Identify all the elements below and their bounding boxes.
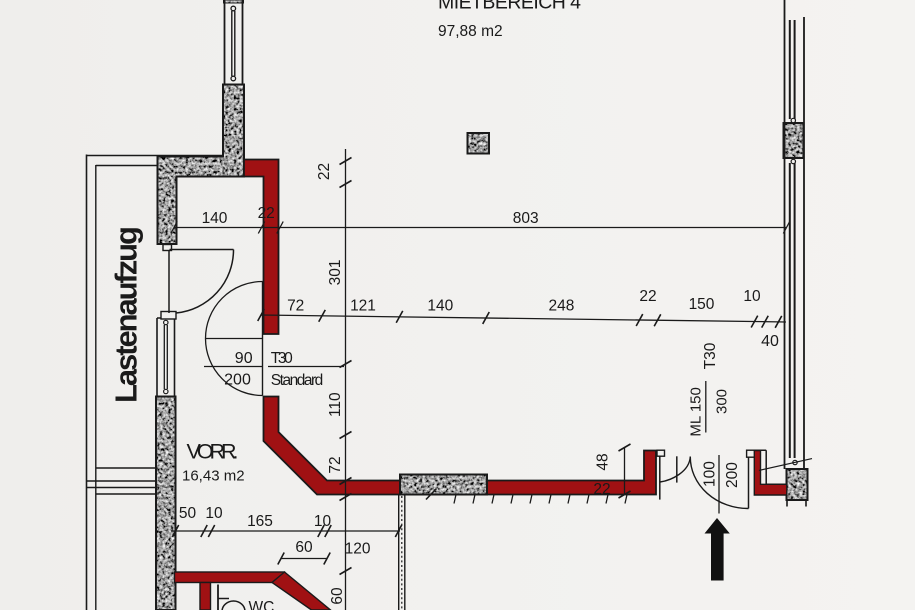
svg-text:110: 110 bbox=[327, 392, 344, 417]
svg-text:120: 120 bbox=[345, 541, 371, 558]
svg-text:248: 248 bbox=[548, 298, 574, 315]
svg-text:140: 140 bbox=[202, 210, 228, 227]
svg-text:60: 60 bbox=[295, 539, 313, 556]
svg-text:165: 165 bbox=[247, 513, 273, 530]
svg-text:T30: T30 bbox=[702, 342, 719, 369]
svg-text:60: 60 bbox=[329, 587, 346, 605]
svg-text:T30: T30 bbox=[271, 350, 293, 367]
svg-text:301: 301 bbox=[327, 259, 344, 285]
svg-text:72: 72 bbox=[287, 298, 304, 315]
svg-text:150: 150 bbox=[689, 296, 715, 313]
svg-text:97,88 m2: 97,88 m2 bbox=[438, 23, 503, 40]
svg-text:22: 22 bbox=[639, 288, 656, 305]
svg-text:140: 140 bbox=[427, 298, 453, 315]
svg-text:Lastenaufzug: Lastenaufzug bbox=[109, 226, 144, 403]
svg-text:100: 100 bbox=[702, 461, 719, 487]
svg-text:10: 10 bbox=[743, 288, 761, 305]
svg-text:803: 803 bbox=[513, 210, 539, 227]
svg-text:300: 300 bbox=[714, 389, 731, 414]
svg-text:16,43 m2: 16,43 m2 bbox=[182, 468, 245, 485]
svg-text:10: 10 bbox=[205, 505, 223, 522]
svg-text:72: 72 bbox=[327, 456, 344, 473]
svg-text:10: 10 bbox=[314, 513, 332, 530]
svg-text:40: 40 bbox=[761, 333, 779, 350]
svg-text:200: 200 bbox=[724, 462, 741, 488]
svg-text:200: 200 bbox=[224, 372, 251, 389]
svg-text:22: 22 bbox=[258, 205, 275, 222]
svg-text:WC: WC bbox=[249, 599, 275, 610]
svg-text:50: 50 bbox=[179, 505, 197, 522]
svg-text:MIETBEREICH 4: MIETBEREICH 4 bbox=[438, 0, 581, 14]
svg-text:90: 90 bbox=[235, 350, 253, 367]
svg-text:48: 48 bbox=[595, 453, 612, 470]
svg-text:121: 121 bbox=[350, 298, 376, 315]
svg-text:22: 22 bbox=[316, 163, 333, 180]
svg-text:Standard: Standard bbox=[271, 372, 324, 389]
svg-text:ML 150: ML 150 bbox=[688, 387, 705, 436]
svg-text:VORR.: VORR. bbox=[187, 440, 239, 464]
